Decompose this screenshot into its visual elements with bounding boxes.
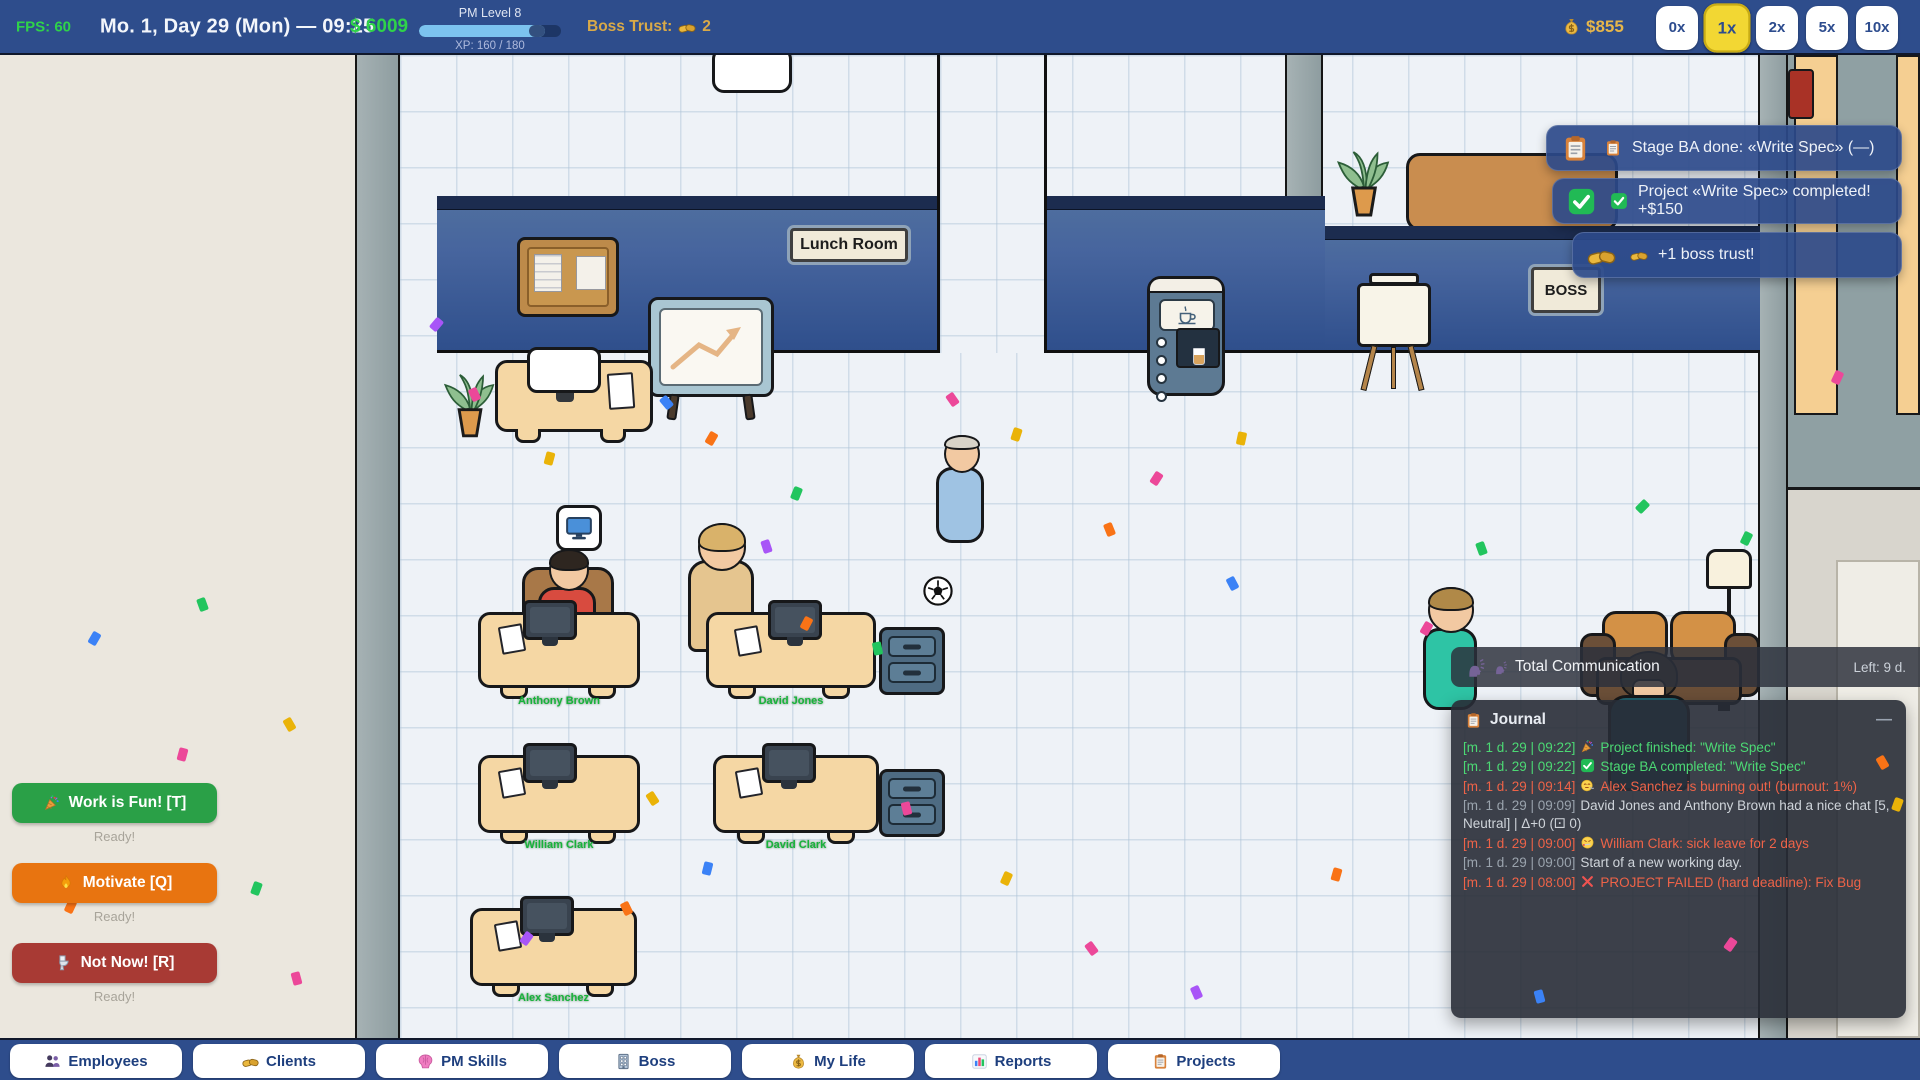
red-armchair <box>1788 69 1814 119</box>
journal-entry: [m. 1 d. 29 | 08:00]PROJECT FAILED (hard… <box>1463 874 1894 892</box>
action-label: Not Now! [R] <box>81 954 175 972</box>
toast-boss-trust[interactable]: +1 boss trust! <box>1572 232 1902 278</box>
paper <box>494 920 522 952</box>
pm-level-label: PM Level 8 <box>417 6 563 20</box>
corkboard <box>517 237 619 317</box>
boss-trust-value: 2 <box>702 18 711 36</box>
wallet-amount: $855 <box>1586 17 1624 37</box>
journal-entry: [m. 1 d. 29 | 09:22]Stage BA completed: … <box>1463 758 1894 776</box>
whiteboard <box>648 297 774 397</box>
toast-text: Stage BA done: «Write Spec» (—) <box>1632 139 1875 157</box>
floor-lamp-shade <box>1706 549 1752 589</box>
toast-project-completed[interactable]: Project «Write Spec» completed! +$150 <box>1552 178 1902 224</box>
moneybag-icon <box>1562 17 1581 36</box>
character-hair <box>1428 587 1474 611</box>
easel-board <box>1357 283 1431 347</box>
party-icon <box>1580 739 1595 754</box>
comm-banner-remaining: Left: 9 d. <box>1853 660 1906 675</box>
easel-leg <box>1391 347 1396 389</box>
sick-face-icon <box>1580 835 1595 850</box>
check-icon <box>1567 187 1596 216</box>
journal-header: Journal — <box>1451 700 1906 737</box>
employee-name-label: David Jones <box>706 695 876 707</box>
coffee-button <box>1156 355 1167 366</box>
xp-progress-knob <box>529 25 545 37</box>
moneybag-icon <box>790 1053 807 1070</box>
monitor <box>523 743 577 783</box>
computer-icon <box>564 513 594 543</box>
pinned-paper <box>576 256 606 290</box>
trend-chart-drawing <box>661 310 761 384</box>
employee-character-walking[interactable] <box>936 467 984 543</box>
xp-progress-fill <box>419 25 545 37</box>
journal-entry: [m. 1 d. 29 | 09:14]Alex Sanchez is burn… <box>1463 778 1894 796</box>
monitor <box>762 743 816 783</box>
clipboard-icon <box>1604 139 1622 157</box>
total-communication-banner: Total Communication Left: 9 d. <box>1451 647 1920 687</box>
journal-panel: Journal — [m. 1 d. 29 | 09:22]Project fi… <box>1451 700 1906 1018</box>
speed-10x-button[interactable]: 10x <box>1856 6 1898 50</box>
handshake-icon <box>1630 246 1648 264</box>
door-strip <box>1896 55 1920 415</box>
comm-banner-title: Total Communication <box>1515 658 1660 676</box>
game-screen: FPS: 60 Mo. 1, Day 29 (Mon) — 09:25 $ 60… <box>0 0 1920 1080</box>
bottom-nav-bar: Employees Clients PM Skills Boss My Life… <box>0 1038 1920 1080</box>
cup-icon <box>1175 303 1199 327</box>
small-table <box>712 55 792 93</box>
people-icon <box>44 1053 61 1070</box>
fps-counter: FPS: 60 <box>16 18 71 35</box>
monitor <box>768 600 822 640</box>
top-bar: FPS: 60 Mo. 1, Day 29 (Mon) — 09:25 $ 60… <box>0 0 1920 55</box>
whiteboard-face <box>659 308 763 386</box>
clipboard-icon <box>1561 134 1590 163</box>
clipboard-icon <box>1465 712 1482 729</box>
employee-character-david-jones[interactable] <box>698 523 746 571</box>
speed-2x-button[interactable]: 2x <box>1756 6 1798 50</box>
lunch-room-sign: Lunch Room <box>790 228 908 262</box>
boss-trust: Boss Trust: 2 <box>587 18 711 36</box>
employee-name-label: Anthony Brown <box>478 695 640 707</box>
speed-0x-button[interactable]: 0x <box>1656 6 1698 50</box>
plant-icon <box>441 353 499 449</box>
monitor <box>520 896 574 936</box>
employee-name-label: David Clark <box>713 839 879 851</box>
action-label: Work is Fun! [T] <box>69 794 187 812</box>
corridor <box>937 55 1047 353</box>
paper <box>498 623 526 655</box>
easel-top <box>1369 273 1419 285</box>
motivate-button[interactable]: Motivate [Q] <box>12 863 217 903</box>
ball-icon[interactable] <box>922 575 954 607</box>
journal-collapse-button[interactable]: — <box>1876 715 1892 725</box>
action-status: Ready! <box>12 909 217 924</box>
coffee-machine[interactable] <box>1147 276 1225 396</box>
coffee-dispenser <box>1176 328 1220 368</box>
journal-entry: [m. 1 d. 29 | 09:09]David Jones and Anth… <box>1463 797 1894 834</box>
toast-text: Project «Write Spec» completed! +$150 <box>1638 183 1887 219</box>
tab-projects[interactable]: Projects <box>1108 1044 1280 1078</box>
handshake-icon <box>1587 241 1616 270</box>
left-wall <box>355 55 400 1038</box>
tab-clients[interactable]: Clients <box>193 1044 365 1078</box>
paper <box>735 767 763 799</box>
handshake-icon <box>678 18 696 36</box>
tab-pm-skills[interactable]: PM Skills <box>376 1044 548 1078</box>
character-hair <box>944 435 980 450</box>
toast-text: +1 boss trust! <box>1658 246 1755 264</box>
drawer-unit <box>879 769 945 837</box>
coffee-button <box>1156 337 1167 348</box>
work-is-fun-button[interactable]: Work is Fun! [T] <box>12 783 217 823</box>
character-head <box>944 435 980 473</box>
coffee-machine-screen <box>1159 299 1215 331</box>
tab-reports[interactable]: Reports <box>925 1044 1097 1078</box>
toast-stage-done[interactable]: Stage BA done: «Write Spec» (—) <box>1546 125 1902 171</box>
drawer-unit <box>879 627 945 695</box>
tab-my-life[interactable]: My Life <box>742 1044 914 1078</box>
character-hair <box>698 523 746 552</box>
building-icon <box>615 1053 632 1070</box>
check-icon <box>1610 192 1628 210</box>
action-status: Ready! <box>12 989 217 1004</box>
employee-name-label: William Clark <box>478 839 640 851</box>
journal-title: Journal <box>1490 711 1546 729</box>
xp-progress-bar <box>419 25 561 37</box>
coffee-button <box>1156 373 1167 384</box>
coffee-machine-top <box>1150 279 1222 293</box>
reception-laptop <box>527 347 601 393</box>
wallet: $855 <box>1562 17 1624 37</box>
coffee-button <box>1156 391 1167 402</box>
monitor <box>523 600 577 640</box>
character-hair <box>549 549 589 571</box>
plant-icon <box>1334 125 1394 233</box>
journal-entry: [m. 1 d. 29 | 09:22]Project finished: "W… <box>1463 739 1894 757</box>
money-display: $ 6009 <box>350 16 408 38</box>
boss-trust-label: Boss Trust: <box>587 18 672 36</box>
brain-icon <box>417 1053 434 1070</box>
task-thought-bubble <box>556 505 602 551</box>
speed-controls: 0x 1x 2x 5x 10x <box>1656 0 1898 55</box>
pinned-paper <box>534 254 562 292</box>
upper-wall-divider <box>1285 55 1323 196</box>
clipboard-icon <box>1152 1053 1169 1070</box>
tab-boss[interactable]: Boss <box>559 1044 731 1078</box>
employee-name-label: Alex Sanchez <box>470 992 637 1004</box>
character-head <box>549 549 589 591</box>
speak-icon <box>1493 660 1508 675</box>
exhale-face-icon <box>1580 778 1595 793</box>
party-icon <box>43 794 61 812</box>
coffee-cup <box>1193 348 1205 365</box>
not-now-button[interactable]: Not Now! [R] <box>12 943 217 983</box>
desk-foot <box>600 429 626 443</box>
paper <box>498 767 526 799</box>
handshake-icon <box>242 1053 259 1070</box>
character-head <box>1428 587 1474 633</box>
xp-label: XP: 160 / 180 <box>417 40 563 52</box>
flame-icon <box>57 874 75 892</box>
speed-1x-button[interactable]: 1x <box>1703 3 1750 52</box>
check-icon <box>1580 758 1595 773</box>
pm-level-block: PM Level 8 XP: 160 / 180 <box>417 0 563 55</box>
desk-foot <box>515 429 541 443</box>
journal-entry: [m. 1 d. 29 | 09:00]William Clark: sick … <box>1463 835 1894 853</box>
toilet-icon <box>55 954 73 972</box>
speed-5x-button[interactable]: 5x <box>1806 6 1848 50</box>
tab-employees[interactable]: Employees <box>10 1044 182 1078</box>
action-label: Motivate [Q] <box>83 874 173 892</box>
x-icon <box>1580 874 1595 889</box>
laptop-stand <box>556 393 574 402</box>
paper <box>734 625 762 657</box>
chart-icon <box>971 1053 988 1070</box>
paper <box>607 372 635 410</box>
speak-icon <box>1465 657 1486 678</box>
action-status: Ready! <box>12 829 217 844</box>
game-clock: Mo. 1, Day 29 (Mon) — 09:25 <box>100 15 374 38</box>
journal-entry: [m. 1 d. 29 | 09:00]Start of a new worki… <box>1463 854 1894 872</box>
journal-entries: [m. 1 d. 29 | 09:22]Project finished: "W… <box>1451 737 1906 895</box>
